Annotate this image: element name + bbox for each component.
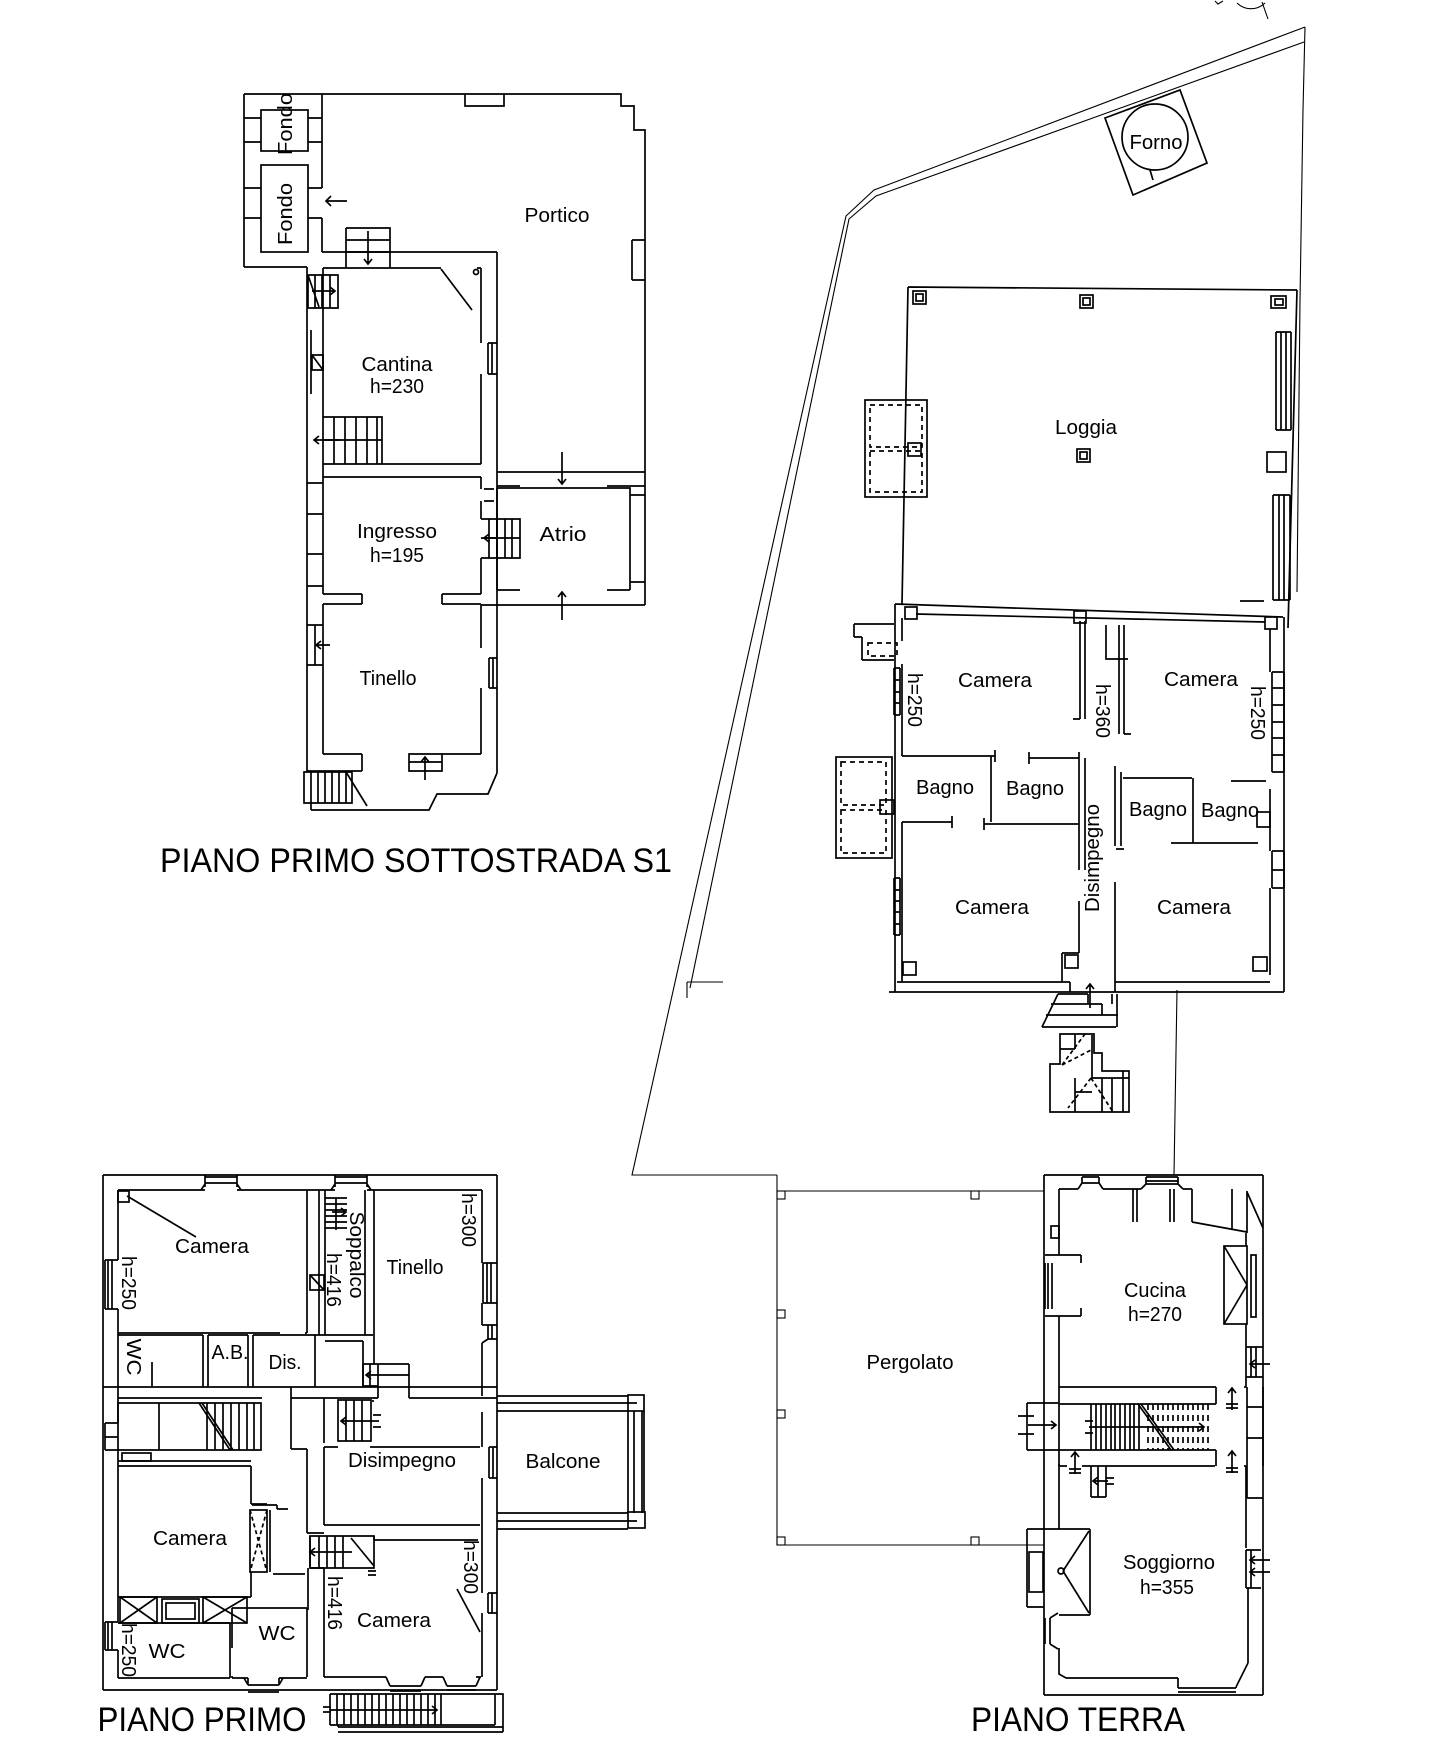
svg-text:h=355: h=355 — [1140, 1577, 1194, 1599]
svg-text:Tinello: Tinello — [360, 668, 417, 690]
svg-text:Atrio: Atrio — [540, 524, 587, 546]
svg-text:Camera: Camera — [357, 1610, 432, 1632]
svg-text:Camera: Camera — [153, 1528, 228, 1550]
svg-text:Disimpegno: Disimpegno — [348, 1450, 456, 1472]
svg-text:Camera: Camera — [1164, 669, 1239, 691]
svg-text:Fondo: Fondo — [275, 93, 297, 155]
svg-text:Dis.: Dis. — [269, 1352, 302, 1374]
svg-text:Bagno: Bagno — [1201, 800, 1259, 822]
svg-text:Camera: Camera — [958, 670, 1033, 692]
svg-text:h=250: h=250 — [117, 1256, 139, 1310]
svg-text:h=270: h=270 — [1128, 1304, 1182, 1326]
svg-text:h=416: h=416 — [322, 1253, 344, 1307]
svg-text:h=250: h=250 — [117, 1623, 139, 1677]
svg-text:Cucina: Cucina — [1124, 1280, 1187, 1302]
svg-text:PIANO TERRA: PIANO TERRA — [971, 1701, 1185, 1739]
svg-text:h=195: h=195 — [370, 545, 424, 567]
svg-text:Pergolato: Pergolato — [867, 1352, 954, 1374]
svg-text:h=230: h=230 — [370, 376, 424, 398]
svg-text:Disimpegno: Disimpegno — [1082, 804, 1104, 912]
svg-text:WC: WC — [122, 1339, 144, 1376]
svg-text:h=250: h=250 — [903, 673, 925, 727]
svg-text:PIANO PRIMO: PIANO PRIMO — [98, 1701, 307, 1739]
svg-text:Soggiorno: Soggiorno — [1123, 1552, 1215, 1574]
svg-text:h=360: h=360 — [1091, 684, 1113, 738]
svg-text:Balcone: Balcone — [526, 1451, 601, 1473]
svg-text:h=250: h=250 — [1246, 686, 1268, 740]
svg-text:Tinello: Tinello — [387, 1257, 444, 1279]
svg-text:Camera: Camera — [1157, 897, 1232, 919]
svg-text:Portico: Portico — [525, 205, 590, 227]
svg-text:Cantina: Cantina — [362, 354, 434, 376]
svg-text:Camera: Camera — [175, 1236, 250, 1258]
svg-text:Ingresso: Ingresso — [357, 521, 437, 543]
svg-text:Bagno: Bagno — [1129, 799, 1187, 821]
svg-text:Fondo: Fondo — [275, 183, 297, 245]
svg-text:WC: WC — [259, 1623, 296, 1645]
svg-text:Soppalco: Soppalco — [345, 1212, 367, 1299]
svg-text:Camera: Camera — [955, 897, 1030, 919]
svg-text:Forno: Forno — [1130, 132, 1183, 154]
svg-text:Loggia: Loggia — [1055, 417, 1118, 439]
svg-text:PIANO PRIMO SOTTOSTRADA S1: PIANO PRIMO SOTTOSTRADA S1 — [160, 842, 672, 880]
svg-text:h=300: h=300 — [459, 1540, 481, 1594]
svg-text:Bagno: Bagno — [1006, 778, 1064, 800]
svg-text:h=300: h=300 — [457, 1193, 479, 1247]
svg-text:h=416: h=416 — [323, 1576, 345, 1630]
svg-text:Bagno: Bagno — [916, 777, 974, 799]
svg-text:A.B.: A.B. — [212, 1342, 249, 1364]
svg-text:WC: WC — [149, 1641, 186, 1663]
